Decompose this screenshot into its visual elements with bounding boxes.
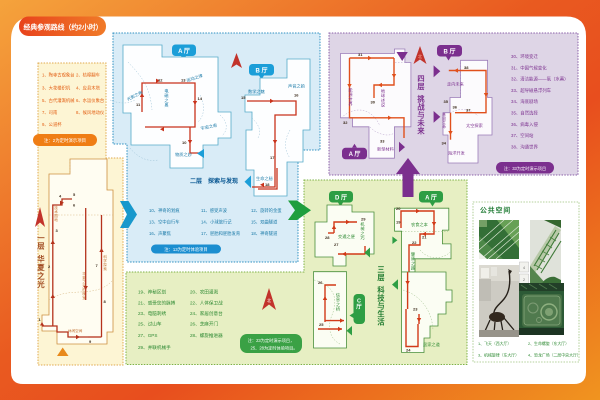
svg-text:32: 32 xyxy=(343,120,348,125)
svg-text:1、飞天（西大厅）: 1、飞天（西大厅） xyxy=(478,341,511,346)
svg-text:公共空间: 公共空间 xyxy=(480,206,511,215)
svg-text:生命之秘: 生命之秘 xyxy=(256,175,274,182)
svg-text:17、胚胎和胚胎发育: 17、胚胎和胚胎发育 xyxy=(201,230,241,237)
svg-text:A 厅: A 厅 xyxy=(425,194,437,202)
svg-text:7、司南: 7、司南 xyxy=(42,109,58,115)
svg-text:13、空中自行车: 13、空中自行车 xyxy=(149,219,180,226)
svg-text:34: 34 xyxy=(442,141,447,146)
svg-text:30: 30 xyxy=(371,100,376,105)
svg-text:1、陶寺古观象台: 1、陶寺古观象台 xyxy=(42,72,74,79)
svg-text:25、28为定时体验项目。: 25、28为定时体验项目。 xyxy=(250,345,297,352)
svg-text:9、公道杯: 9、公道杯 xyxy=(42,121,62,128)
svg-text:A 厅: A 厅 xyxy=(178,47,190,55)
svg-text:基因生命: 基因生命 xyxy=(442,112,446,129)
svg-text:经典参观路线（约2小时）: 经典参观路线（约2小时） xyxy=(24,23,103,32)
svg-text:22: 22 xyxy=(412,240,417,245)
svg-text:12: 12 xyxy=(158,78,163,83)
svg-text:注：23为定时演示项目，: 注：23为定时演示项目， xyxy=(248,337,295,344)
svg-text:农食之本: 农食之本 xyxy=(411,221,429,228)
svg-text:技术园地: 技术园地 xyxy=(54,205,58,222)
svg-text:29、并联机械手: 29、并联机械手 xyxy=(138,344,171,351)
svg-text:24、家居创意台: 24、家居创意台 xyxy=(190,310,223,317)
svg-text:16、声聚焦: 16、声聚焦 xyxy=(149,230,172,237)
svg-text:14、小球旅行记: 14、小球旅行记 xyxy=(201,219,232,226)
svg-text:18: 18 xyxy=(265,182,270,187)
svg-text:37: 37 xyxy=(466,108,471,113)
svg-text:33、超导磁悬浮列车: 33、超导磁悬浮列车 xyxy=(511,87,552,94)
svg-text:注：33为定时演示项目: 注：33为定时演示项目 xyxy=(504,165,546,172)
svg-text:2: 2 xyxy=(523,278,525,282)
svg-text:科学探索: 科学探索 xyxy=(103,254,107,271)
svg-text:19: 19 xyxy=(396,220,401,225)
svg-text:4、恐龙广场（二层中央大厅）: 4、恐龙广场（二层中央大厅） xyxy=(528,353,581,358)
svg-text:33: 33 xyxy=(380,139,385,144)
svg-text:38、沟通世界: 38、沟通世界 xyxy=(511,143,538,150)
svg-text:14: 14 xyxy=(198,96,203,101)
svg-text:交通之便: 交通之便 xyxy=(338,233,356,240)
svg-text:3、机械旋律（东大厅）: 3、机械旋律（东大厅） xyxy=(478,353,519,358)
svg-text:36: 36 xyxy=(453,105,458,110)
svg-text:27: 27 xyxy=(334,242,339,247)
svg-text:23: 23 xyxy=(413,307,418,312)
svg-text:6、水运仪象台: 6、水运仪象台 xyxy=(76,97,104,104)
svg-text:休闲空间: 休闲空间 xyxy=(68,328,83,333)
svg-text:28、螺旋推进器: 28、螺旋推进器 xyxy=(190,332,223,339)
svg-text:25: 25 xyxy=(319,322,324,327)
svg-text:8、候风地动仪: 8、候风地动仪 xyxy=(76,109,105,116)
svg-text:19、神秘区划: 19、神秘区划 xyxy=(138,289,166,296)
svg-text:24: 24 xyxy=(406,348,411,353)
svg-text:17: 17 xyxy=(270,155,275,160)
svg-text:D 厅: D 厅 xyxy=(335,194,347,202)
svg-text:27、GPS: 27、GPS xyxy=(138,333,157,338)
svg-text:20: 20 xyxy=(396,206,401,211)
svg-text:2、生命螺旋（东大厅）: 2、生命螺旋（东大厅） xyxy=(528,341,569,346)
svg-text:B 厅: B 厅 xyxy=(443,47,455,55)
svg-text:四层挑战与未来: 四层挑战与未来 xyxy=(416,74,425,135)
svg-text:海洋开发: 海洋开发 xyxy=(448,150,466,157)
svg-text:31: 31 xyxy=(358,52,363,57)
svg-text:32、清洁能源——氢（水幕）: 32、清洁能源——氢（水幕） xyxy=(511,76,569,83)
svg-text:A 厅: A 厅 xyxy=(349,150,361,158)
svg-text:二层 探索与发现: 二层 探索与发现 xyxy=(190,177,239,185)
svg-text:一层华夏之光: 一层华夏之光 xyxy=(36,233,45,289)
svg-text:36、病毒入侵: 36、病毒入侵 xyxy=(511,121,538,128)
svg-text:15: 15 xyxy=(241,95,246,100)
svg-text:34、海底剧场: 34、海底剧场 xyxy=(511,98,538,105)
svg-text:4: 4 xyxy=(523,266,525,270)
svg-text:5、古代灌溉机械: 5、古代灌溉机械 xyxy=(42,97,75,104)
svg-text:2、桔槔翻车: 2、桔槔翻车 xyxy=(76,72,101,79)
svg-text:26、芝麻开门: 26、芝麻开门 xyxy=(190,321,218,328)
svg-text:21、感受您的脉搏: 21、感受您的脉搏 xyxy=(138,300,176,307)
svg-text:28: 28 xyxy=(325,235,330,240)
svg-text:15、双曲隧道: 15、双曲隧道 xyxy=(251,219,278,226)
svg-text:新型材料: 新型材料 xyxy=(377,146,395,153)
svg-text:10: 10 xyxy=(182,140,187,145)
svg-text:10、神奇的划痕: 10、神奇的划痕 xyxy=(149,207,180,214)
svg-text:声音之韵: 声音之韵 xyxy=(288,83,305,90)
svg-text:12、旋转的金蛋: 12、旋转的金蛋 xyxy=(251,207,282,214)
svg-text:物质之妙: 物质之妙 xyxy=(175,151,192,158)
svg-text:35: 35 xyxy=(444,99,449,104)
svg-text:16: 16 xyxy=(294,93,299,98)
svg-text:B 厅: B 厅 xyxy=(255,67,267,75)
svg-text:20、农田灌溉: 20、农田灌溉 xyxy=(190,289,218,296)
svg-text:注：2为定时演示项目: 注：2为定时演示项目 xyxy=(44,137,86,144)
svg-text:38: 38 xyxy=(464,65,469,70)
svg-text:31、中国气候变化: 31、中国气候变化 xyxy=(511,64,547,71)
svg-text:数学之魅: 数学之魅 xyxy=(248,88,266,95)
svg-text:18、神奇隧道: 18、神奇隧道 xyxy=(251,230,278,237)
svg-text:37、空间站: 37、空间站 xyxy=(511,132,534,139)
svg-text:3、大花楼织机: 3、大花楼织机 xyxy=(42,85,71,92)
svg-text:35、自然选择: 35、自然选择 xyxy=(511,110,538,117)
svg-text:北: 北 xyxy=(267,297,271,303)
svg-text:23、电脑刺绣: 23、电脑刺绣 xyxy=(138,310,166,317)
svg-text:注：13为定时体验项目: 注：13为定时体验项目 xyxy=(164,246,207,253)
svg-text:25、过山车: 25、过山车 xyxy=(138,321,162,328)
svg-text:22、人体保卫战: 22、人体保卫战 xyxy=(190,300,223,307)
svg-text:4、应县木塔: 4、应县木塔 xyxy=(76,85,101,92)
svg-text:太空探索: 太空探索 xyxy=(466,122,483,129)
svg-text:11、感受声波: 11、感受声波 xyxy=(201,207,228,214)
svg-text:26: 26 xyxy=(318,280,323,285)
svg-text:走向未来: 走向未来 xyxy=(447,81,465,88)
svg-text:居家之道: 居家之道 xyxy=(423,341,441,348)
svg-text:30、环境变迁: 30、环境变迁 xyxy=(511,53,538,60)
svg-text:三层科技与生活: 三层科技与生活 xyxy=(377,265,385,326)
svg-text:21: 21 xyxy=(422,235,427,240)
